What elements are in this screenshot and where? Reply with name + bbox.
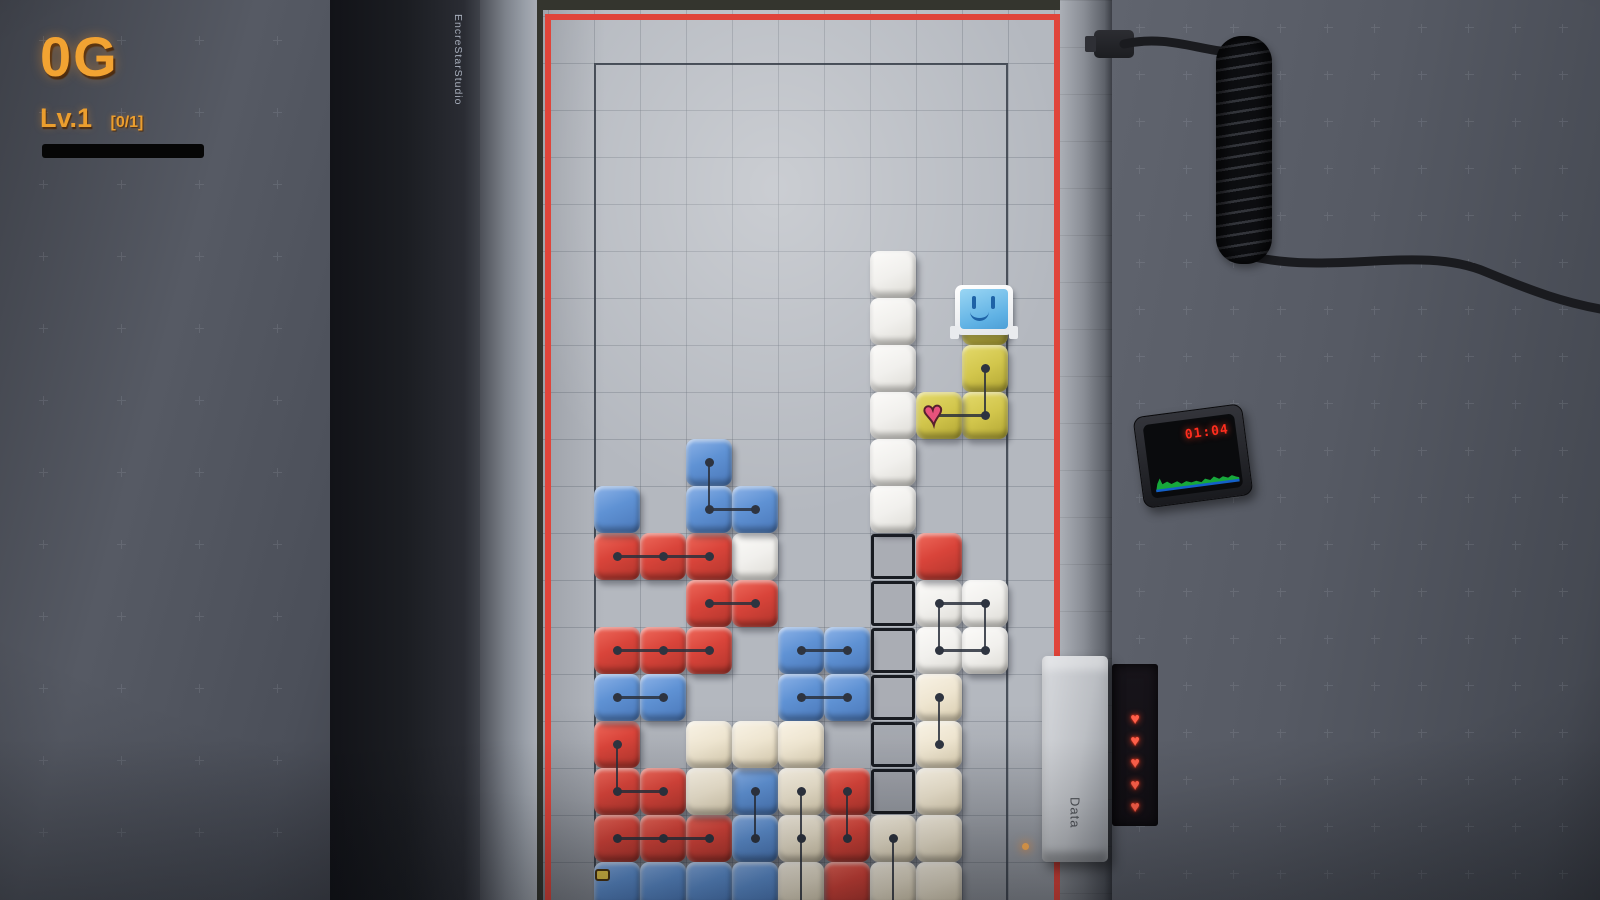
wall-plus-mark <box>1183 400 1192 409</box>
block-blue <box>686 862 732 900</box>
wall-plus-mark <box>1136 400 1145 409</box>
trace-dot <box>797 787 806 796</box>
wall-plus-mark <box>1465 870 1474 879</box>
trace-dot <box>981 646 990 655</box>
wall-plus-mark <box>1324 635 1333 644</box>
trace-dot <box>659 834 668 843</box>
wall-plus-mark <box>39 180 48 189</box>
trace-line <box>938 698 941 745</box>
trace-dot <box>843 787 852 796</box>
wall-plus-mark <box>39 324 48 333</box>
wall-plus-mark <box>1512 447 1521 456</box>
wall-plus-mark <box>1371 870 1380 879</box>
wall-plus-mark <box>1418 776 1427 785</box>
wall-plus-mark <box>1371 447 1380 456</box>
block-white <box>870 392 916 439</box>
trace-dot <box>613 834 622 843</box>
wall-plus-mark <box>1277 776 1286 785</box>
trace-dot <box>797 646 806 655</box>
wall-plus-mark <box>1512 870 1521 879</box>
level-row: Lv.1 [0/1] <box>40 103 204 134</box>
trace-line <box>754 792 757 839</box>
wall-plus-mark <box>1512 776 1521 785</box>
wall-plus-mark <box>273 468 282 477</box>
wall-plus-mark <box>117 756 126 765</box>
wall-plus-mark <box>195 612 204 621</box>
trace-dot <box>613 646 622 655</box>
score-hud: 0G Lv.1 [0/1] <box>40 24 204 158</box>
trace-dot <box>981 364 990 373</box>
trace-line <box>709 508 755 511</box>
heart-block-icon: ♥ <box>922 396 945 431</box>
trace-dot <box>705 599 714 608</box>
wall-plus-mark <box>1559 823 1568 832</box>
wall-plus-mark <box>1418 353 1427 362</box>
companion-screen <box>960 289 1008 329</box>
trace-line <box>801 696 847 699</box>
trace-line <box>616 745 619 792</box>
wall-plus-mark <box>1277 353 1286 362</box>
wall-plus-mark <box>1277 494 1286 503</box>
wall-plus-mark <box>117 468 126 477</box>
trace-dot <box>889 834 898 843</box>
wall-plus-mark <box>1371 494 1380 503</box>
block-cream <box>686 721 732 768</box>
wall-plus-mark <box>1465 588 1474 597</box>
block-white <box>870 345 916 392</box>
trace-dot <box>613 693 622 702</box>
wall-plus-mark <box>1183 776 1192 785</box>
arcade-door: ♥ <box>537 0 1060 900</box>
wall-plus-mark <box>273 540 282 549</box>
wall-plus-mark <box>1559 494 1568 503</box>
block-cream <box>732 721 778 768</box>
ghost-cell <box>871 581 915 626</box>
wall-plus-mark <box>273 108 282 117</box>
companion-face <box>955 285 1013 335</box>
wall-plus-mark <box>1230 541 1239 550</box>
wall-plus-mark <box>1183 682 1192 691</box>
wall-plus-mark <box>1559 447 1568 456</box>
wall-plus-mark <box>1277 870 1286 879</box>
life-heart-icon: ♥ <box>1130 712 1140 728</box>
wall-plus-mark <box>1230 776 1239 785</box>
wall-plus-mark <box>1371 541 1380 550</box>
ghost-cell <box>871 769 915 814</box>
wall-plus-mark <box>1371 823 1380 832</box>
wall-plus-mark <box>39 468 48 477</box>
wall-plus-mark <box>1324 541 1333 550</box>
wall-plus-mark <box>117 540 126 549</box>
wall-plus-mark <box>1371 588 1380 597</box>
wall-plus-mark <box>1371 776 1380 785</box>
wall-plus-mark <box>117 684 126 693</box>
trace-dot <box>935 693 944 702</box>
trace-line <box>846 792 849 839</box>
wall-plus-mark <box>1465 682 1474 691</box>
wall-plus-mark <box>39 756 48 765</box>
wall-plus-mark <box>1183 635 1192 644</box>
timer-display: 01:04 <box>1132 403 1253 509</box>
block-blue <box>594 486 640 533</box>
wall-plus-mark <box>1230 353 1239 362</box>
cable <box>1090 20 1600 320</box>
wall-plus-mark <box>195 540 204 549</box>
coiled-cable <box>1216 36 1272 264</box>
wall-plus-mark <box>1559 729 1568 738</box>
companion-smile <box>970 309 989 321</box>
wall-plus-mark <box>1418 447 1427 456</box>
block-blue <box>640 862 686 900</box>
wall-plus-mark <box>1136 588 1145 597</box>
wall-plus-mark <box>1418 635 1427 644</box>
timer-screen: 01:04 <box>1143 413 1244 498</box>
wall-plus-mark <box>1230 682 1239 691</box>
wall-plus-mark <box>1324 776 1333 785</box>
wall-plus-mark <box>1418 400 1427 409</box>
companion-eye-left <box>972 296 976 309</box>
wall-plus-mark <box>1277 541 1286 550</box>
trace-line <box>617 696 663 699</box>
wall-plus-mark <box>1183 729 1192 738</box>
trace-dot <box>935 599 944 608</box>
wall-plus-mark <box>1465 494 1474 503</box>
wall-plus-mark <box>1465 823 1474 832</box>
wall-plus-mark <box>1418 823 1427 832</box>
door-left-edge <box>480 0 537 900</box>
wall-plus-mark <box>273 180 282 189</box>
trace-dot <box>797 693 806 702</box>
life-heart-icon: ♥ <box>1130 800 1140 816</box>
wall-plus-mark <box>1136 353 1145 362</box>
trace-line <box>939 602 985 605</box>
wall-plus-mark <box>1559 776 1568 785</box>
wall-plus-mark <box>195 828 204 837</box>
wall-plus-mark <box>1277 682 1286 691</box>
wall-plus-mark <box>1277 588 1286 597</box>
wall-plus-mark <box>117 324 126 333</box>
wall-plus-mark <box>273 36 282 45</box>
trace-dot <box>935 646 944 655</box>
wall-plus-mark <box>1559 400 1568 409</box>
trace-dot <box>797 834 806 843</box>
wall-plus-mark <box>1512 541 1521 550</box>
wall-plus-mark <box>1418 588 1427 597</box>
wall-plus-mark <box>195 180 204 189</box>
ghost-cell <box>871 628 915 673</box>
indicator-light <box>1022 843 1029 850</box>
trace-dot <box>751 834 760 843</box>
block-blue <box>594 862 640 900</box>
ghost-cell <box>871 722 915 767</box>
wall-plus-mark <box>39 540 48 549</box>
trace-line <box>938 604 941 651</box>
wall-plus-mark <box>195 252 204 261</box>
trace-dot <box>705 834 714 843</box>
block-cream <box>778 721 824 768</box>
wall-plus-mark <box>1418 494 1427 503</box>
trace-dot <box>705 552 714 561</box>
wall-plus-mark <box>1559 588 1568 597</box>
wall-plus-mark <box>1324 870 1333 879</box>
wall-plus-mark <box>273 324 282 333</box>
block-cream <box>686 768 732 815</box>
trace-dot <box>843 646 852 655</box>
wall-plus-mark <box>1277 400 1286 409</box>
wall-plus-mark <box>273 252 282 261</box>
block-white <box>870 486 916 533</box>
wall-plus-mark <box>1465 541 1474 550</box>
data-handle[interactable]: Data <box>1042 656 1108 862</box>
trace-dot <box>705 458 714 467</box>
wall-plus-mark <box>1230 870 1239 879</box>
timer-value: 01:04 <box>1184 422 1230 443</box>
wall-plus-mark <box>1465 729 1474 738</box>
trace-line <box>800 792 803 900</box>
wall-plus-mark <box>1371 682 1380 691</box>
wall-plus-mark <box>1371 353 1380 362</box>
wall-plus-mark <box>39 684 48 693</box>
wall-plus-mark <box>1371 400 1380 409</box>
wall-plus-mark <box>1324 353 1333 362</box>
trace-dot <box>613 787 622 796</box>
trace-dot <box>751 787 760 796</box>
wall-plus-mark <box>195 756 204 765</box>
wall-plus-mark <box>1277 823 1286 832</box>
wall-plus-mark <box>1183 541 1192 550</box>
trace-dot <box>751 505 760 514</box>
wall-plus-mark <box>1324 682 1333 691</box>
wall-plus-mark <box>1371 635 1380 644</box>
trace-dot <box>659 787 668 796</box>
wall-plus-mark <box>1324 494 1333 503</box>
block-blue <box>732 862 778 900</box>
wall-plus-mark <box>1371 729 1380 738</box>
waveform-graph <box>1150 450 1242 495</box>
wall-plus-mark <box>39 828 48 837</box>
wall-plus-mark <box>1230 729 1239 738</box>
life-heart-icon: ♥ <box>1130 734 1140 750</box>
door-pillar <box>330 0 482 900</box>
wall-plus-mark <box>1230 588 1239 597</box>
level-progress-text: [0/1] <box>110 114 143 131</box>
wall-plus-mark <box>1559 682 1568 691</box>
wall-plus-mark <box>39 252 48 261</box>
wall-plus-mark <box>1418 682 1427 691</box>
wall-plus-mark <box>1465 447 1474 456</box>
wall-plus-mark <box>117 612 126 621</box>
wall-plus-mark <box>1465 776 1474 785</box>
trace-line <box>617 790 663 793</box>
score-value: 0G <box>40 24 204 89</box>
wall-plus-mark <box>1418 729 1427 738</box>
trace-dot <box>613 552 622 561</box>
wall-plus-mark <box>1183 588 1192 597</box>
wall-plus-mark <box>1324 447 1333 456</box>
wall-plus-mark <box>1559 353 1568 362</box>
trace-line <box>892 839 895 900</box>
wall-plus-mark <box>1512 588 1521 597</box>
trace-dot <box>935 740 944 749</box>
wall-plus-mark <box>1230 635 1239 644</box>
wall-plus-mark <box>117 252 126 261</box>
wall-plus-mark <box>1418 541 1427 550</box>
block-white <box>870 298 916 345</box>
trace-dot <box>843 693 852 702</box>
trace-line <box>801 649 847 652</box>
wall-plus-mark <box>1277 447 1286 456</box>
trace-dot <box>659 646 668 655</box>
wall-plus-mark <box>195 684 204 693</box>
wall-plus-mark <box>1183 353 1192 362</box>
studio-watermark: EncreStarStudio <box>452 14 464 105</box>
wall-plus-mark <box>1559 635 1568 644</box>
block-red <box>916 533 962 580</box>
wall-plus-mark <box>1324 588 1333 597</box>
wall-plus-mark <box>195 468 204 477</box>
wall-plus-mark <box>117 396 126 405</box>
wall-plus-mark <box>273 396 282 405</box>
wall-plus-mark <box>1512 353 1521 362</box>
companion-arm-right <box>1009 326 1018 339</box>
wall-plus-mark <box>273 612 282 621</box>
wall-plus-mark <box>1512 729 1521 738</box>
level-label: Lv.1 <box>40 103 92 133</box>
wall-plus-mark <box>273 756 282 765</box>
wall-plus-mark <box>39 612 48 621</box>
wall-plus-mark <box>1465 400 1474 409</box>
trace-dot <box>705 646 714 655</box>
wall-plus-mark <box>195 324 204 333</box>
wall-plus-mark <box>39 396 48 405</box>
trace-dot <box>705 505 714 514</box>
wall-plus-mark <box>1559 541 1568 550</box>
block-cream <box>916 815 962 862</box>
trace-line <box>708 463 711 510</box>
game-screen: 0G Lv.1 [0/1] EncreStarStudio ♥ <box>0 0 1600 900</box>
wall-plus-mark <box>1136 541 1145 550</box>
trace-dot <box>981 411 990 420</box>
wall-plus-mark <box>117 180 126 189</box>
wall-plus-mark <box>1512 635 1521 644</box>
block-red <box>824 862 870 900</box>
trace-dot <box>613 740 622 749</box>
wall-plus-mark <box>1559 870 1568 879</box>
trace-dot <box>659 693 668 702</box>
wall-plus-mark <box>1277 729 1286 738</box>
wall-plus-mark <box>1183 823 1192 832</box>
wall-plus-mark <box>1418 870 1427 879</box>
block-white <box>732 533 778 580</box>
trace-dot <box>843 834 852 843</box>
ghost-cell <box>871 534 915 579</box>
wall-plus-mark <box>1465 353 1474 362</box>
mini-badge <box>595 869 610 881</box>
wall-plus-mark <box>1277 635 1286 644</box>
ghost-cell <box>871 675 915 720</box>
wall-plus-mark <box>195 396 204 405</box>
trace-line <box>939 649 985 652</box>
companion-eye-right <box>991 296 995 309</box>
block-cream <box>916 862 962 900</box>
wall-plus-mark <box>1230 823 1239 832</box>
wall-plus-mark <box>1324 823 1333 832</box>
companion-arm-left <box>950 326 959 339</box>
trace-dot <box>981 599 990 608</box>
wall-plus-mark <box>273 684 282 693</box>
wall-plus-mark <box>1512 682 1521 691</box>
data-handle-label: Data <box>1068 797 1083 828</box>
wall-plus-mark <box>1136 635 1145 644</box>
wall-plus-mark <box>1465 635 1474 644</box>
trace-line <box>984 369 987 416</box>
wall-plus-mark <box>1512 400 1521 409</box>
trace-line <box>709 602 755 605</box>
wall-plus-mark <box>1324 729 1333 738</box>
trace-line <box>984 604 987 651</box>
life-heart-icon: ♥ <box>1130 778 1140 794</box>
board-layer: ♥ <box>594 63 1008 900</box>
trace-dot <box>751 599 760 608</box>
block-cream <box>916 768 962 815</box>
trace-dot <box>659 552 668 561</box>
wall-plus-mark <box>1512 823 1521 832</box>
wall-plus-mark <box>1136 870 1145 879</box>
lives-panel: ♥♥♥♥♥ <box>1112 664 1158 826</box>
wall-plus-mark <box>117 828 126 837</box>
block-white <box>870 439 916 486</box>
wall-plus-mark <box>273 828 282 837</box>
wall-plus-mark <box>1512 494 1521 503</box>
trace-line <box>939 414 985 417</box>
level-progress-bar <box>42 144 204 158</box>
wall-plus-mark <box>1324 400 1333 409</box>
life-heart-icon: ♥ <box>1130 756 1140 772</box>
wall-plus-mark <box>1183 870 1192 879</box>
block-white <box>870 251 916 298</box>
